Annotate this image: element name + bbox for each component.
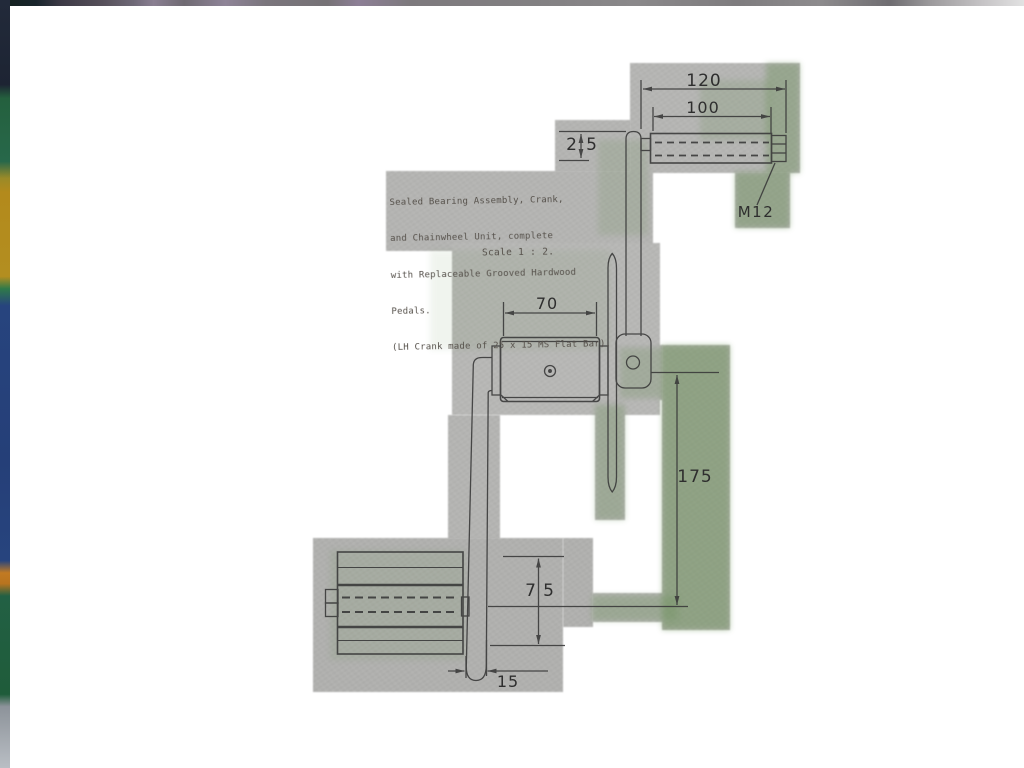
drawing-note: Sealed Bearing Assembly, Crank, and Chai… <box>389 169 623 379</box>
dim-label-25-left: 2 <box>565 137 579 154</box>
top-pedal-drawing <box>641 134 786 164</box>
dim-label-120: 120 <box>684 73 724 90</box>
note-line: Pedals. <box>391 302 621 318</box>
pedal-nut-m12 <box>772 136 787 162</box>
dim-label-100: 100 <box>683 100 723 116</box>
pedal-axle-stub <box>641 139 651 151</box>
drawing-linework <box>0 0 1024 768</box>
bottom-pedal-nut <box>326 590 339 617</box>
m12-leader-line <box>757 163 775 205</box>
note-line: and Chainwheel Unit, complete <box>390 229 620 245</box>
scale-note: Scale 1 : 2. <box>482 246 554 258</box>
dim-label-m12: M12 <box>734 205 778 220</box>
note-line: Sealed Bearing Assembly, Crank, <box>389 193 619 209</box>
crank-bolt-hole <box>627 356 640 369</box>
dim-label-15: 15 <box>488 674 528 690</box>
note-line: (LH Crank made of 25 x 15 MS Flat Bar). <box>392 338 622 354</box>
left-crank-drawing <box>466 358 492 681</box>
dim-75 <box>490 557 565 646</box>
dim-label-75-right: 5 <box>542 583 556 600</box>
dim-label-75-left: 7 <box>524 583 538 600</box>
bottom-pedal-drawing <box>326 552 464 654</box>
dim-label-175: 175 <box>677 469 713 486</box>
scanned-page: 120 100 2 5 70 175 7 5 15 M12 Sealed Bea… <box>0 0 1024 768</box>
note-line: with Replaceable Grooved Hardwood <box>391 266 621 282</box>
dim-175 <box>488 373 719 607</box>
dim-label-25-right: 5 <box>585 137 599 154</box>
